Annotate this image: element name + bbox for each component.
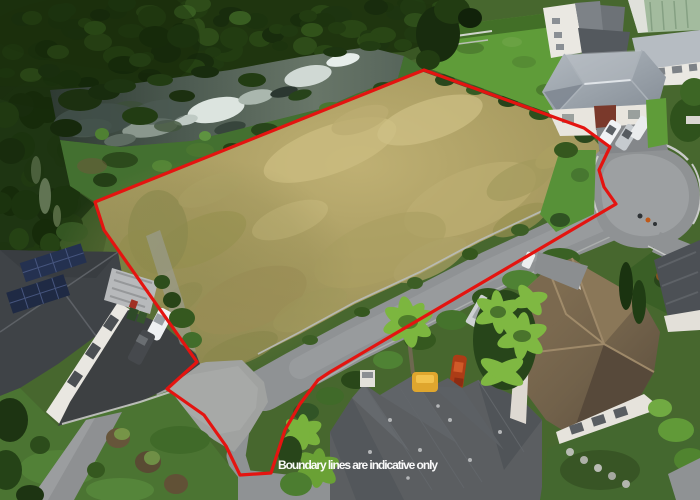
svg-text:Boundary lines are indicative: Boundary lines are indicative only — [278, 458, 438, 472]
